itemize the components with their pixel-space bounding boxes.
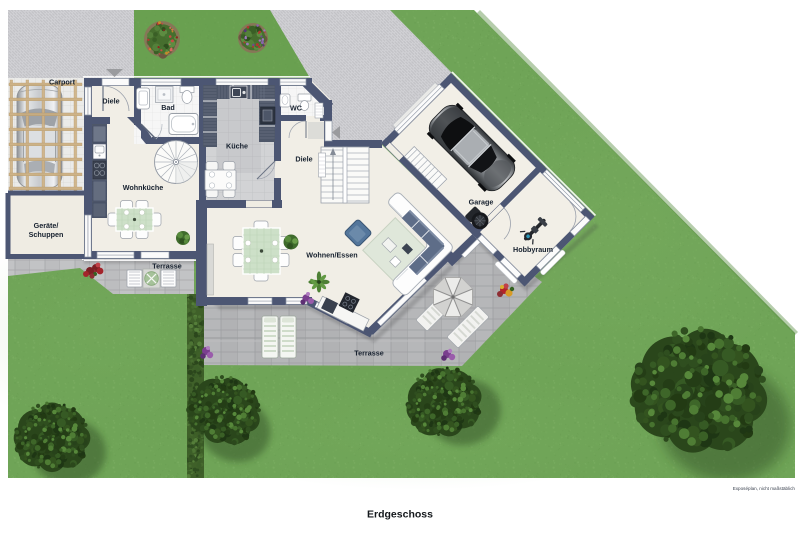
svg-text:Carport: Carport <box>49 78 76 87</box>
svg-text:Diele: Diele <box>102 97 119 106</box>
svg-text:Küche: Küche <box>226 142 248 151</box>
svg-text:Diele: Diele <box>295 155 312 164</box>
svg-text:Wohnküche: Wohnküche <box>123 183 164 192</box>
svg-text:Hobbyraum: Hobbyraum <box>513 245 553 254</box>
svg-text:Erdgeschoss: Erdgeschoss <box>367 509 433 521</box>
svg-text:Terrasse: Terrasse <box>152 262 181 271</box>
svg-text:Wohnen/Essen: Wohnen/Essen <box>306 251 357 260</box>
svg-text:Garage: Garage <box>469 198 494 207</box>
svg-text:WC: WC <box>290 104 302 113</box>
svg-text:Geräte/: Geräte/ <box>34 221 59 230</box>
svg-text:Schuppen: Schuppen <box>29 230 64 239</box>
svg-text:Exposéplan, nicht maßstäblich: Exposéplan, nicht maßstäblich <box>733 486 796 491</box>
svg-text:Terrasse: Terrasse <box>354 349 383 358</box>
svg-text:Bad: Bad <box>161 103 175 112</box>
